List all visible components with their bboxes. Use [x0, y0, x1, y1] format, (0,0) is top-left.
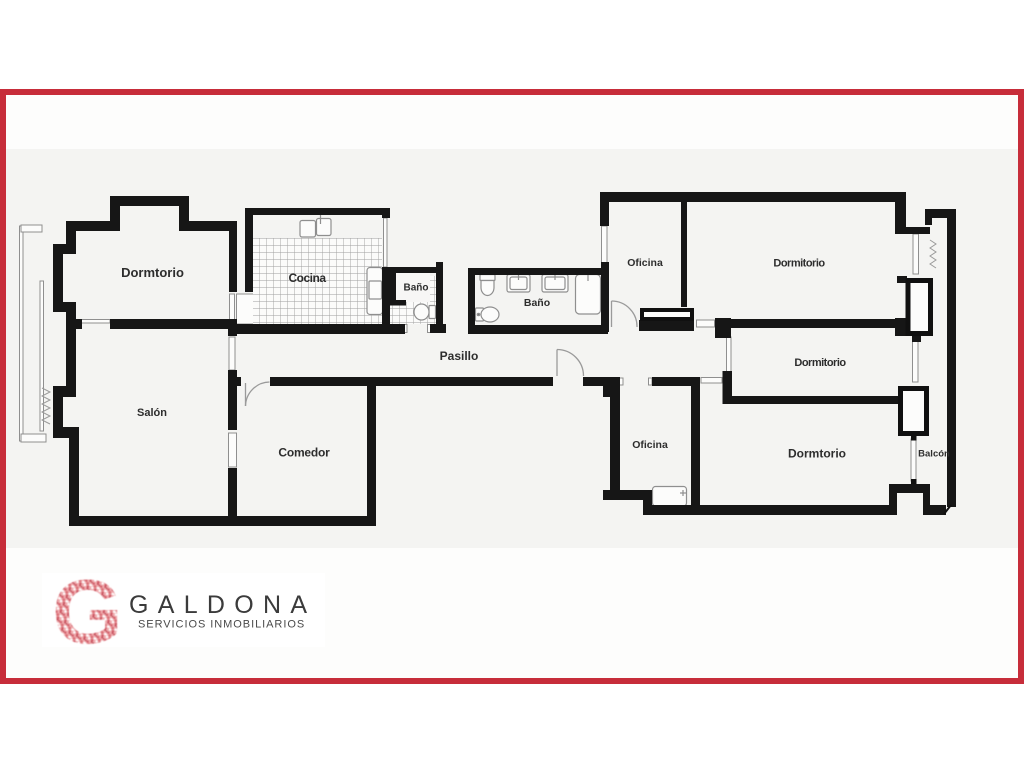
svg-text:Dormitorio: Dormitorio	[794, 357, 846, 369]
svg-text:Baño: Baño	[524, 297, 550, 309]
svg-text:Cocina: Cocina	[288, 271, 326, 285]
svg-text:SERVICIOS INMOBILIARIOS: SERVICIOS INMOBILIARIOS	[138, 619, 305, 631]
svg-text:Baño: Baño	[404, 283, 429, 294]
svg-text:Oficina: Oficina	[632, 439, 668, 451]
svg-text:Pasillo: Pasillo	[440, 349, 479, 363]
svg-text:Dormtorio: Dormtorio	[788, 447, 846, 461]
svg-text:GALDONA: GALDONA	[129, 591, 316, 619]
svg-text:Salón: Salón	[137, 407, 167, 419]
svg-text:Comedor: Comedor	[278, 446, 330, 460]
svg-text:Balcón: Balcón	[918, 449, 950, 460]
svg-text:G: G	[52, 562, 123, 663]
svg-text:Oficina: Oficina	[627, 257, 663, 269]
svg-text:Dormitorio: Dormitorio	[773, 258, 825, 270]
svg-text:Dormtorio: Dormtorio	[121, 265, 184, 280]
